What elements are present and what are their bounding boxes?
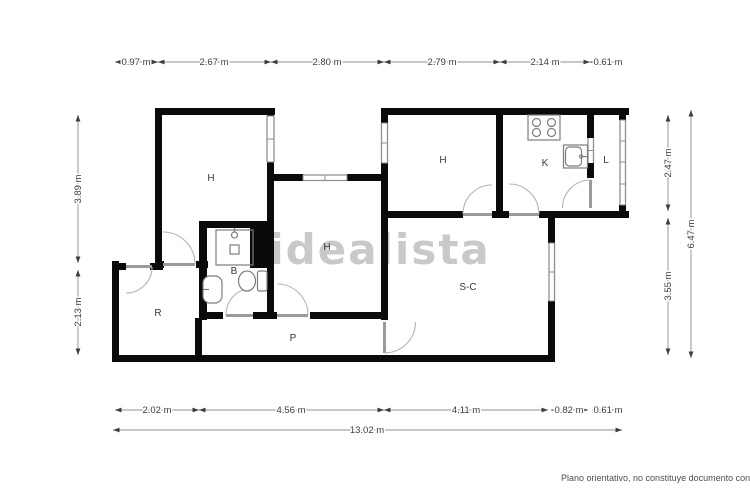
stove-fixture bbox=[528, 115, 560, 140]
door-kitchen-to-l bbox=[563, 180, 591, 208]
dim-bottom-2: 4.56 m bbox=[276, 405, 305, 416]
idealista-watermark: idealista bbox=[269, 225, 491, 274]
dim-top-5: 2.14 m bbox=[530, 57, 559, 68]
room-label-k: K bbox=[542, 158, 549, 169]
dim-bottom-1: 2.02 m bbox=[142, 405, 171, 416]
room-label-h2: H bbox=[439, 155, 446, 166]
door-kitchen bbox=[509, 184, 539, 215]
dim-left-2: 2.13 m bbox=[73, 297, 84, 326]
bidet-fixture bbox=[203, 276, 222, 303]
dim-top-6: 0.61 m bbox=[593, 57, 622, 68]
door-middle-room bbox=[277, 284, 308, 316]
room-label-sc: S-C bbox=[459, 282, 476, 293]
dim-total-width: 13.02 m bbox=[350, 425, 384, 436]
dim-bottom-5: 0.61 m bbox=[593, 405, 622, 416]
fixtures bbox=[203, 115, 588, 303]
dim-top-4: 2.79 m bbox=[427, 57, 456, 68]
dim-right-2: 3.55 m bbox=[663, 271, 674, 300]
dim-bottom-4: 0.82 m bbox=[554, 405, 583, 416]
door-bedroom2 bbox=[463, 185, 492, 215]
dim-right-total: 6.47 m bbox=[686, 219, 697, 248]
dim-top-1: 0.97 m bbox=[121, 57, 150, 68]
window-middle-room-top bbox=[303, 174, 347, 182]
room-label-l: L bbox=[603, 155, 609, 166]
room-label-r: R bbox=[154, 308, 161, 319]
dim-top-2: 2.67 m bbox=[199, 57, 228, 68]
window-livingroom-right bbox=[548, 243, 556, 301]
window-bedroom2-left bbox=[381, 123, 389, 163]
room-label-h1: H bbox=[207, 173, 214, 184]
kitchen-sink-fixture bbox=[564, 145, 588, 168]
door-bedroom1 bbox=[163, 232, 195, 265]
dim-right-1: 2.47 m bbox=[663, 148, 674, 177]
shower-fixture bbox=[216, 228, 253, 265]
disclaimer-text: Plano orientativo, no constituye documen… bbox=[561, 473, 750, 483]
toilet-fixture bbox=[239, 271, 268, 291]
room-label-b: B bbox=[231, 266, 238, 277]
window-bedroom1-right bbox=[266, 116, 276, 162]
door-room-r-exterior bbox=[126, 267, 152, 294]
door-livingroom bbox=[385, 322, 416, 353]
dim-top-3: 2.80 m bbox=[312, 57, 341, 68]
door-bathroom bbox=[226, 288, 253, 316]
room-label-h3: H bbox=[323, 242, 330, 253]
dim-bottom-3: 4.11 m bbox=[452, 405, 480, 416]
floor-plan: idealista bbox=[0, 0, 750, 500]
dim-left-1: 3.89 m bbox=[73, 174, 84, 203]
window-room-l-right bbox=[619, 120, 627, 205]
room-label-p: P bbox=[290, 333, 297, 344]
window-kitchen-l-partition bbox=[588, 138, 594, 163]
